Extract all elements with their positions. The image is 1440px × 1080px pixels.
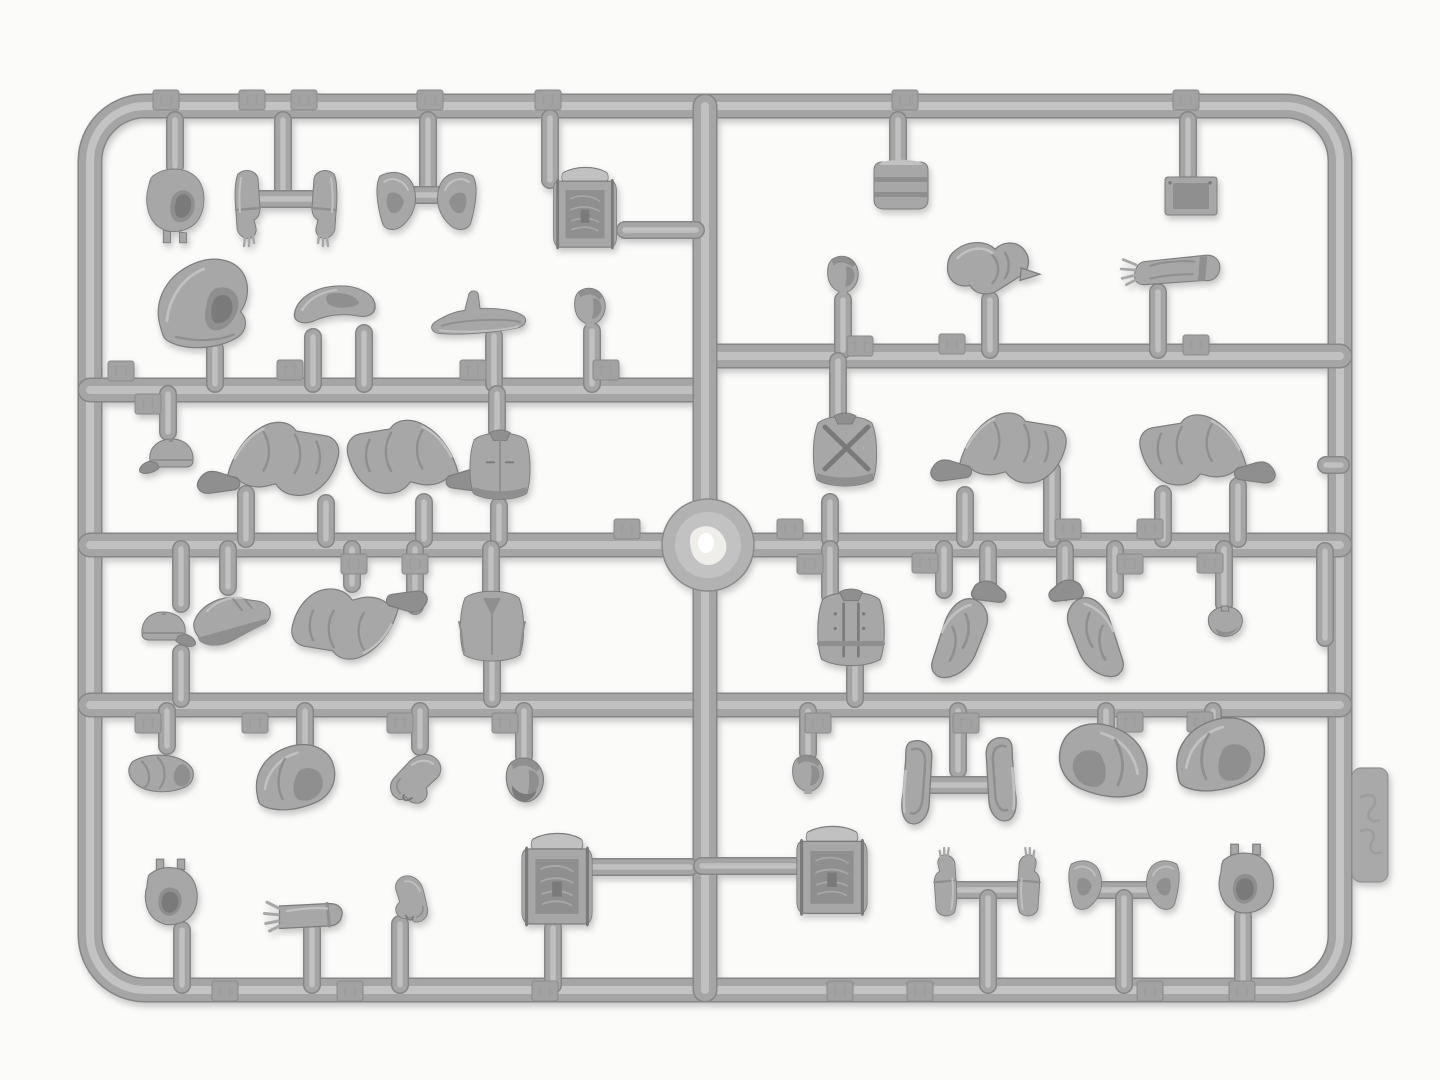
- part-forearm-detail: [318, 236, 328, 246]
- part-hood-small: [1060, 724, 1148, 797]
- part-arm-gauntlet: [1121, 255, 1220, 285]
- part-backpack: [797, 826, 867, 913]
- number-tab: [1137, 519, 1163, 539]
- part-gaiter: [1146, 861, 1179, 910]
- part-balaclava-open-detail: [1253, 844, 1261, 855]
- part-balaclava-open: [1219, 844, 1273, 913]
- number-tab-plate: [907, 981, 933, 1001]
- number-tab: [108, 361, 134, 381]
- number-tab: [847, 336, 873, 356]
- part-forearm: [934, 848, 956, 916]
- number-tab-plate: [593, 360, 619, 380]
- part-torso-dbl-detail: [818, 592, 884, 665]
- part-legs: [347, 420, 488, 493]
- part-legs-detail: [347, 420, 458, 493]
- photo-stage: [0, 0, 1440, 1080]
- part-forearm-detail: [1025, 848, 1034, 857]
- part-forearm: [1017, 848, 1039, 916]
- number-tab: [1183, 335, 1209, 355]
- part-arm-gauntlet-detail: [1135, 255, 1220, 285]
- part-head: [793, 755, 824, 794]
- number-tab-plate: [912, 553, 938, 573]
- number-tab-plate: [460, 360, 486, 380]
- part-forearm: [312, 171, 337, 246]
- part-hood-big: [158, 259, 247, 348]
- number-tab-plate: [1197, 553, 1223, 573]
- part-head-detail: [586, 323, 594, 327]
- number-tab-plate: [402, 554, 428, 574]
- part-cap-detail: [169, 439, 173, 442]
- part-backpack-detail: [562, 167, 608, 181]
- part-drum-detail: [880, 160, 923, 165]
- number-tab: [797, 554, 823, 574]
- number-tab-plate: [108, 361, 134, 381]
- number-tab: [1117, 554, 1143, 574]
- part-drum-detail: [874, 162, 928, 209]
- part-plate: [1165, 177, 1217, 215]
- part-torso-dbl-detail: [839, 589, 862, 601]
- number-tab: [953, 713, 979, 733]
- number-tab: [492, 713, 518, 733]
- part-legs-v-detail: [1049, 580, 1083, 601]
- number-tab-plate: [153, 90, 179, 110]
- number-tab: [277, 360, 303, 380]
- part-legs-v-detail: [971, 581, 1005, 602]
- number-tab-plate: [535, 90, 561, 110]
- number-tab: [239, 90, 265, 110]
- number-tab: [939, 334, 965, 354]
- part-gaiter: [1069, 861, 1102, 910]
- number-tab: [1197, 553, 1223, 573]
- part-beret-detail: [1221, 606, 1229, 611]
- part-backpack-detail: [581, 210, 590, 223]
- part-torso-straps-detail: [834, 413, 856, 424]
- number-tab-plate: [847, 336, 873, 356]
- part-legs-detail: [1140, 415, 1246, 485]
- number-tab: [535, 90, 561, 110]
- part-legs-detail: [960, 413, 1066, 483]
- number-tab-plate: [135, 713, 161, 733]
- number-tab-plate: [1229, 981, 1255, 1001]
- side-tab-body: [1352, 768, 1388, 882]
- number-tab-plate: [239, 90, 265, 110]
- number-tab: [827, 981, 853, 1001]
- part-balaclava-detail: [180, 232, 187, 243]
- number-tab: [1137, 981, 1163, 1001]
- part-gaiter: [438, 172, 477, 229]
- number-tab: [1117, 712, 1143, 732]
- part-torso-vest-detail: [490, 430, 511, 440]
- part-hand-arm-detail: [265, 902, 280, 931]
- number-tab: [777, 519, 803, 539]
- number-tab-plate: [1183, 335, 1209, 355]
- number-tab-plate: [1137, 519, 1163, 539]
- part-head: [575, 288, 606, 327]
- number-tab: [907, 981, 933, 1001]
- part-legs-detail: [228, 422, 339, 495]
- part-backpack-detail: [806, 826, 858, 841]
- number-tab: [153, 90, 179, 110]
- part-legs: [931, 413, 1066, 483]
- part-balaclava-detail: [163, 230, 170, 243]
- part-roll: [129, 755, 194, 792]
- part-head-beard: [506, 758, 543, 802]
- number-tab-plate: [939, 334, 965, 354]
- number-tab: [387, 713, 413, 733]
- part-shoulder: [294, 286, 375, 323]
- number-tab-plate: [492, 713, 518, 733]
- number-tab-plate: [777, 519, 803, 539]
- number-tab: [805, 713, 831, 733]
- number-tab: [212, 981, 238, 1001]
- number-tab: [135, 394, 161, 414]
- number-tab-plate: [827, 981, 853, 1001]
- part-legs: [292, 589, 427, 659]
- part-hand-arm: [265, 902, 343, 931]
- part-cap-detail: [140, 461, 159, 473]
- part-legs: [1140, 415, 1275, 485]
- number-tab-plate: [892, 90, 918, 110]
- part-beret: [1208, 606, 1242, 636]
- sprue-group: [90, 90, 1388, 1001]
- part-arm-bent: [391, 755, 441, 804]
- part-head-detail: [804, 790, 812, 794]
- part-torso-vest: [470, 430, 530, 499]
- part-arm-bent: [382, 871, 440, 928]
- part-forearm-detail: [940, 848, 949, 857]
- number-tab: [291, 90, 317, 110]
- part-saddle: [432, 291, 526, 334]
- part-head-detail: [839, 291, 847, 295]
- part-cap-detail: [162, 612, 166, 615]
- number-tab-plate: [614, 519, 640, 539]
- number-tab-plate: [953, 713, 979, 733]
- number-tab-plate: [135, 394, 161, 414]
- part-arm-point: [948, 243, 1041, 294]
- part-torso-coat: [459, 591, 525, 661]
- part-legs-detail: [292, 589, 398, 659]
- part-balaclava: [147, 169, 204, 243]
- number-tab-plate: [212, 981, 238, 1001]
- number-tab-plate: [337, 981, 363, 1001]
- number-tab-plate: [1055, 519, 1081, 539]
- number-tab: [614, 519, 640, 539]
- part-balaclava-open-detail: [177, 859, 184, 870]
- number-tab-plate: [532, 981, 558, 1001]
- side-logo-tab: [1352, 768, 1388, 882]
- part-backpack-detail: [531, 833, 583, 849]
- number-tab: [532, 981, 558, 1001]
- part-gaiter: [377, 172, 416, 229]
- number-tab-plate: [417, 90, 443, 110]
- part-panel: [902, 741, 932, 824]
- part-drum: [874, 160, 928, 209]
- part-head: [828, 256, 859, 295]
- center-hub: [662, 499, 754, 591]
- part-forearm: [235, 171, 260, 246]
- number-tab-plate: [291, 90, 317, 110]
- number-tab-plate: [277, 360, 303, 380]
- number-tab: [417, 90, 443, 110]
- part-forearm-detail: [244, 236, 254, 246]
- number-tab: [242, 713, 268, 733]
- part-panel: [986, 738, 1016, 821]
- number-tab-plate: [1173, 90, 1199, 110]
- number-tab: [402, 554, 428, 574]
- number-tab-plate: [242, 713, 268, 733]
- number-tab: [892, 90, 918, 110]
- part-backpack-detail: [827, 873, 837, 887]
- number-tab: [337, 981, 363, 1001]
- part-balaclava-open: [145, 859, 197, 925]
- hub-glare: [698, 533, 714, 553]
- number-tab: [341, 554, 367, 574]
- sprue-photo: [0, 0, 1440, 1080]
- number-tab-plate: [797, 554, 823, 574]
- part-hood-small: [256, 745, 334, 810]
- number-tab-plate: [341, 554, 367, 574]
- number-tab: [1173, 90, 1199, 110]
- part-cap: [142, 612, 196, 646]
- part-backpack: [522, 833, 592, 924]
- number-tab-plate: [1117, 554, 1143, 574]
- part-arm-point-detail: [1020, 268, 1040, 281]
- part-torso-straps: [813, 413, 876, 486]
- number-tab-plate: [1137, 981, 1163, 1001]
- number-tab-plate: [805, 713, 831, 733]
- part-legs: [197, 422, 338, 495]
- number-tab-plate: [1117, 712, 1143, 732]
- number-tab: [912, 553, 938, 573]
- number-tab: [460, 360, 486, 380]
- number-tab-plate: [387, 713, 413, 733]
- number-tab: [593, 360, 619, 380]
- number-tab: [1229, 981, 1255, 1001]
- number-tab: [1055, 519, 1081, 539]
- part-cap: [140, 439, 194, 473]
- part-plate-detail: [1173, 183, 1209, 209]
- number-tab: [135, 713, 161, 733]
- part-torso-dbl: [818, 589, 884, 666]
- part-backpack-detail: [552, 882, 562, 897]
- part-backpack: [553, 167, 616, 247]
